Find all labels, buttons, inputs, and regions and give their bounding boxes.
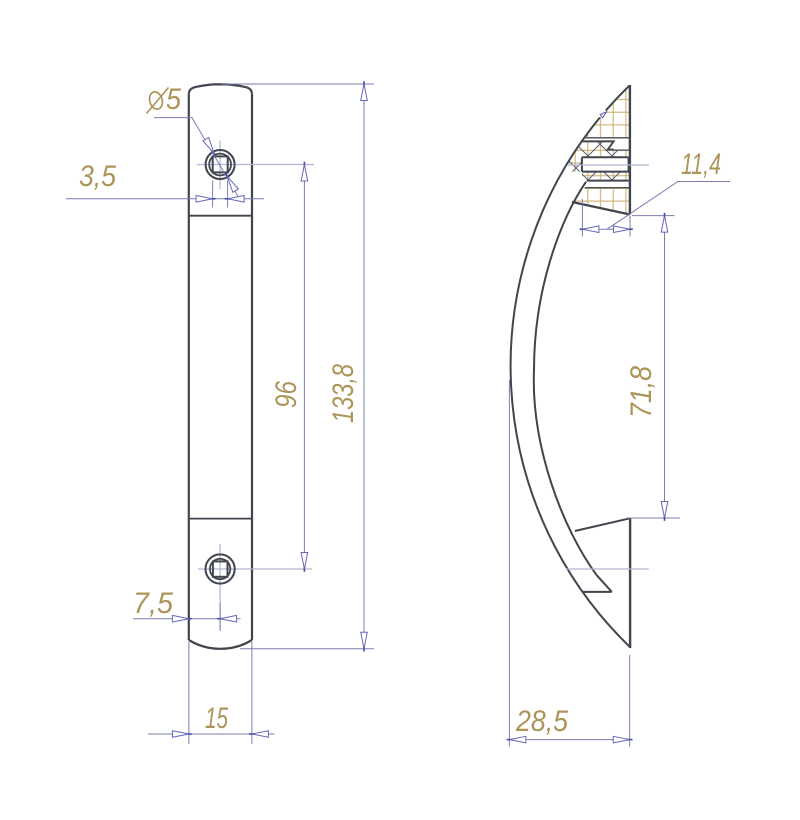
svg-text:11,4: 11,4: [681, 148, 721, 181]
svg-text:96: 96: [270, 381, 303, 408]
svg-text:15: 15: [205, 702, 228, 735]
svg-text:5: 5: [166, 83, 181, 116]
svg-text:133,8: 133,8: [327, 364, 360, 423]
svg-text:7,5: 7,5: [133, 587, 173, 620]
svg-text:3,5: 3,5: [79, 160, 116, 193]
svg-text:71,8: 71,8: [625, 366, 658, 418]
svg-text:28,5: 28,5: [515, 705, 568, 738]
